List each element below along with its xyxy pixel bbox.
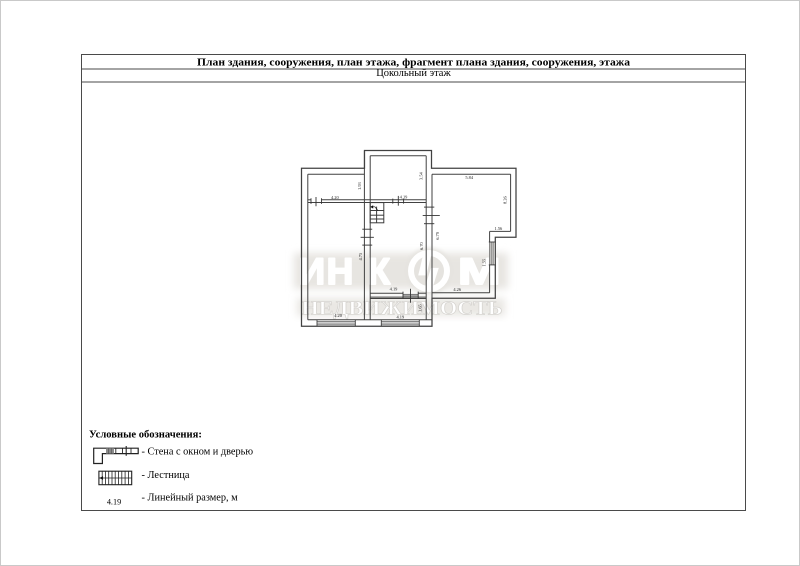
svg-text:- Линейный размер, м: - Линейный размер, м [142, 493, 239, 504]
svg-text:Цокольный этаж: Цокольный этаж [376, 68, 451, 79]
svg-text:4.19: 4.19 [390, 286, 398, 291]
svg-text:Условные обозначения:: Условные обозначения: [89, 430, 202, 441]
svg-text:- Стена с окном и дверью: - Стена с окном и дверью [142, 447, 254, 458]
svg-text:И: И [299, 251, 326, 292]
svg-text:4.19: 4.19 [400, 194, 408, 199]
svg-text:4.19: 4.19 [107, 498, 121, 507]
svg-text:5.84: 5.84 [465, 175, 473, 180]
svg-text:1.93: 1.93 [357, 181, 362, 189]
svg-text:4.20: 4.20 [334, 313, 342, 318]
svg-text:8.26: 8.26 [502, 195, 507, 203]
svg-text:1.56: 1.56 [495, 226, 503, 231]
svg-text:- Лестница: - Лестница [142, 470, 190, 481]
svg-text:4.26: 4.26 [453, 287, 461, 292]
svg-text:1.65: 1.65 [417, 303, 422, 311]
svg-text:1.55: 1.55 [482, 258, 487, 266]
svg-text:План здания, сооружения, план: План здания, сооружения, план этажа, фра… [197, 58, 630, 69]
svg-text:6.70: 6.70 [419, 241, 424, 249]
svg-text:3.54: 3.54 [419, 171, 424, 179]
svg-text:4.19: 4.19 [396, 315, 404, 320]
svg-text:4.75: 4.75 [358, 252, 363, 260]
svg-text:6.79: 6.79 [435, 231, 440, 239]
svg-text:К: К [368, 251, 391, 292]
svg-text:Н: Н [327, 251, 354, 292]
svg-text:4.20: 4.20 [331, 195, 339, 200]
